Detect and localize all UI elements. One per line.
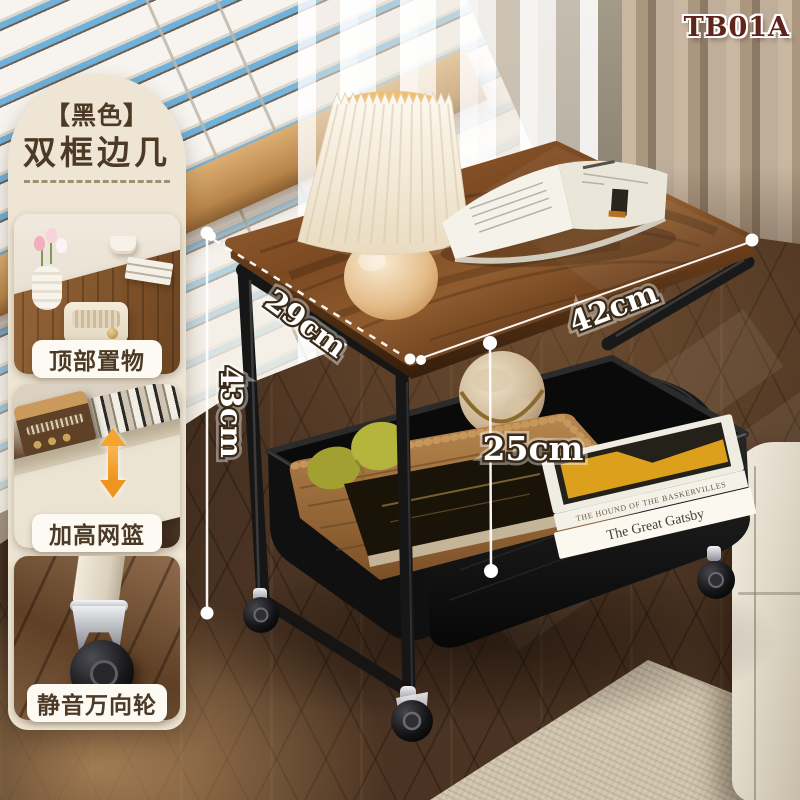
dimension-label-height: 43cm bbox=[213, 366, 248, 458]
product-image: THE HOUND OF THE BASKERVILLES The Great … bbox=[0, 0, 800, 800]
tulip-flower bbox=[34, 236, 45, 251]
tulip-stem bbox=[50, 242, 52, 264]
model-label: TB01A bbox=[684, 12, 790, 43]
coffee-cup bbox=[110, 236, 136, 251]
height-adjust-arrow-icon bbox=[100, 428, 126, 502]
panel-title: 双框边几 bbox=[8, 126, 186, 174]
feature-caption-caster: 静音万向轮 bbox=[27, 684, 167, 722]
dimension-label-clearance: 25cm bbox=[483, 429, 584, 468]
tulip-flower bbox=[46, 228, 57, 243]
feature-caption-basket: 加高网篮 bbox=[32, 514, 162, 552]
feature-caption-top-storage: 顶部置物 bbox=[32, 340, 162, 378]
panel-divider bbox=[24, 180, 170, 183]
tulip-flower bbox=[56, 238, 67, 253]
retro-speaker bbox=[64, 302, 128, 344]
info-panel: 【黑色】 双框边几 顶部置物 加高网篮 bbox=[8, 74, 186, 730]
flower-vase bbox=[32, 266, 62, 310]
